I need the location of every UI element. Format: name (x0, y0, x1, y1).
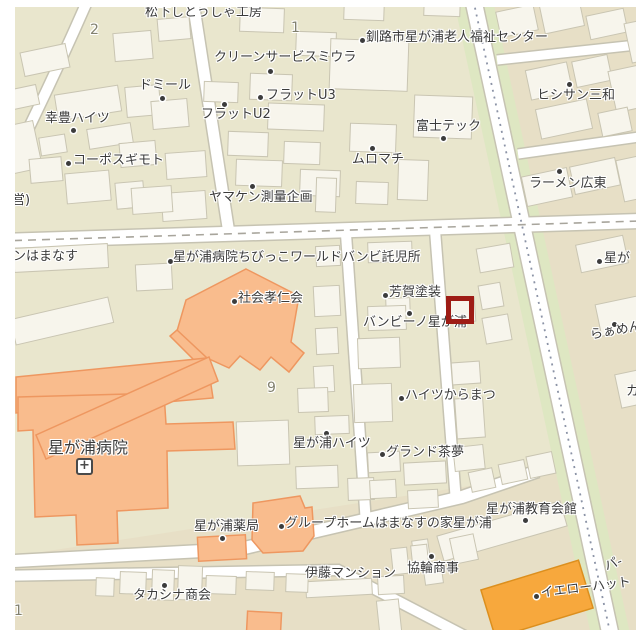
poi-dot (523, 518, 528, 523)
poi-dot (534, 594, 539, 599)
map-canvas[interactable]: + 松下しとうしゃ工房クリーンサービスミウラドミールフラットU3フラットU2幸豊… (0, 0, 640, 639)
map-cursor-marker[interactable] (446, 296, 474, 324)
map-label: コーポスギモト (73, 154, 164, 168)
map-label: 社会孝仁会 (238, 292, 303, 306)
map-label: フラットU3 (266, 89, 336, 103)
map-label: ドミール (139, 79, 191, 93)
map-label: 松下しとうしゃ工房 (145, 6, 262, 20)
frame-left (0, 0, 15, 639)
poi-dot (268, 69, 273, 74)
poi-dot (66, 161, 71, 166)
poi-dot (71, 128, 76, 133)
cursor-corner-br (458, 308, 474, 324)
poi-dot (232, 299, 237, 304)
map-label: ラーメン広東 (529, 177, 606, 191)
poi-dot (258, 95, 263, 100)
block-number: 2 (90, 22, 99, 38)
poi-dot (429, 554, 434, 559)
poi-dot (399, 396, 404, 401)
map-label: 星が浦教育会館 (486, 503, 577, 517)
hospital-icon: + (76, 458, 93, 475)
map-label: 星が浦病院ちびっこワールドバンビ託児所 (173, 251, 421, 265)
map-label: 釧路市星が浦老人福祉センター (366, 31, 548, 45)
map-label: タカシナ商会 (133, 589, 211, 603)
block-number: 1 (14, 603, 23, 619)
map-label: ムロマチ (352, 153, 404, 167)
poi-dot (279, 524, 284, 529)
map-label: クリーンサービスミウラ (214, 51, 356, 65)
poi-dot (370, 146, 375, 151)
poi-dot (360, 38, 365, 43)
frame-right (636, 0, 640, 639)
map-label: 星が浦薬局 (194, 520, 259, 534)
map-label: 協輪商事 (407, 562, 459, 576)
map-label: 芳賀塗装 (389, 286, 441, 300)
map-label: フラットU2 (201, 108, 271, 122)
map-label: ヤマケン測量企画 (209, 191, 313, 205)
block-number: 9 (267, 380, 276, 396)
poi-dot (250, 184, 255, 189)
poi-dot (597, 259, 602, 264)
poi-dot (567, 82, 572, 87)
map-label: ハイツからまつ (405, 389, 496, 403)
block-number: 1 (291, 20, 300, 36)
poi-dot (383, 293, 388, 298)
map-label: 星が (604, 252, 630, 266)
frame-bottom (0, 630, 640, 639)
map-label: 伊藤マンション (305, 567, 396, 581)
map-label: 幸豊ハイツ (45, 112, 110, 126)
poi-dot (557, 169, 562, 174)
map-label: 星が浦病院 (48, 440, 128, 457)
map-label: グループホームはまなすの家星が浦 (285, 517, 492, 531)
poi-dot (380, 452, 385, 457)
poi-dot (160, 96, 165, 101)
map-label: グランド茶夢 (386, 446, 464, 460)
map-label: ヒシサン三和 (537, 89, 615, 103)
poi-dot (441, 136, 446, 141)
poi-dot (220, 536, 225, 541)
map-label: 星が浦ハイツ (293, 437, 371, 451)
frame-top (0, 0, 640, 7)
map-label: 富士テック (416, 120, 481, 134)
map-label: ンはまなす (13, 250, 78, 264)
